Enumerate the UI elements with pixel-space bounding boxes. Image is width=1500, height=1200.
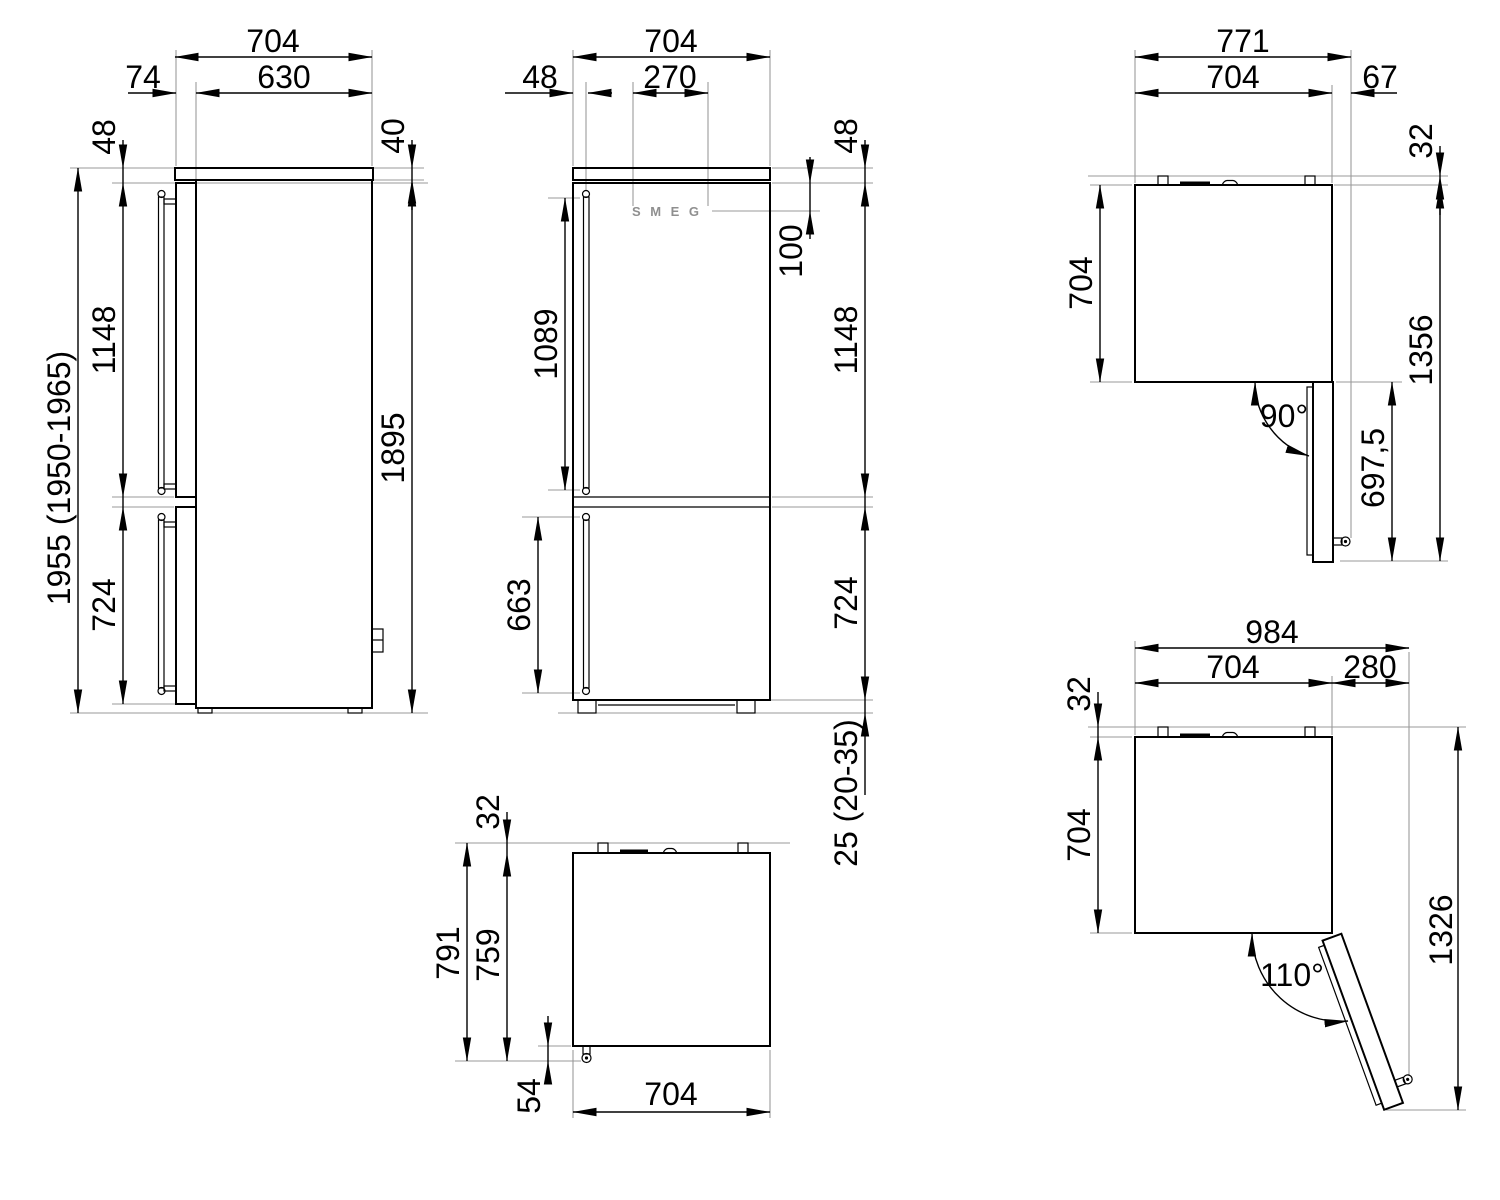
dim-side-upper-door: 1148 bbox=[86, 306, 122, 375]
dim-side-door-depth: 74 bbox=[125, 59, 161, 95]
open-door-110 bbox=[1317, 928, 1419, 1112]
dim-110-body-depth: 704 bbox=[1061, 808, 1097, 861]
dim-90-door-projection: 67 bbox=[1362, 59, 1398, 95]
dim-front-handle-offset: 48 bbox=[522, 59, 558, 95]
side-view: 704 630 74 48 40 1148 724 1955 (1950-196… bbox=[41, 23, 428, 713]
dim-90-angle: 90° bbox=[1260, 398, 1308, 434]
dim-front-logo-width: 270 bbox=[643, 59, 696, 95]
front-dimensions: 704 48 270 48 100 1089 1148 663 724 25 (… bbox=[501, 23, 865, 867]
top90-dimensions: 771 704 67 32 704 1356 697,5 90° bbox=[1063, 23, 1440, 561]
dim-side-total-depth: 704 bbox=[246, 23, 299, 59]
dim-side-top-clearance: 48 bbox=[86, 119, 122, 155]
upper-door-side bbox=[176, 183, 196, 497]
top90-cabinet bbox=[1135, 176, 1332, 382]
left-hinge-closed bbox=[598, 843, 608, 853]
dim-front-upper-door: 1148 bbox=[828, 306, 864, 375]
side-cabinet bbox=[175, 168, 383, 713]
front-view: SMEG 704 48 270 48 100 1089 bbox=[501, 23, 873, 867]
dim-front-lower-handle: 663 bbox=[501, 578, 537, 631]
right-foot-front bbox=[737, 700, 755, 713]
dim-110-hinge-projection: 32 bbox=[1061, 676, 1097, 712]
dim-90-door-clearance: 697,5 bbox=[1355, 428, 1391, 508]
dim-front-feet: 25 (20-35) bbox=[828, 719, 864, 867]
dim-90-total-clearance: 1356 bbox=[1403, 314, 1439, 385]
front-lower-handle bbox=[583, 514, 590, 695]
top-panel-front bbox=[573, 168, 770, 180]
cabinet-plan-110 bbox=[1135, 737, 1332, 933]
cabinet-plan-90 bbox=[1135, 185, 1332, 382]
dim-front-upper-handle: 1089 bbox=[528, 308, 564, 379]
plan-dimensions: 32 791 759 54 704 bbox=[430, 794, 770, 1114]
refrigerator-dimension-drawing: 704 630 74 48 40 1148 724 1955 (1950-196… bbox=[0, 0, 1500, 1200]
top110-cabinet bbox=[1135, 727, 1332, 933]
dim-plan-total-depth: 791 bbox=[430, 926, 466, 979]
top-view-90: 771 704 67 32 704 1356 697,5 90° bbox=[1063, 23, 1448, 562]
handle-stem-closed bbox=[583, 1046, 590, 1054]
dim-plan-width: 704 bbox=[644, 1076, 697, 1112]
open-door-90 bbox=[1307, 382, 1350, 562]
left-hinge-90 bbox=[1158, 176, 1168, 185]
right-hinge-closed bbox=[738, 843, 748, 853]
dim-90-body-width: 704 bbox=[1206, 59, 1259, 95]
top-view-closed: 32 791 759 54 704 bbox=[430, 794, 790, 1118]
back-detail-110 bbox=[1180, 734, 1210, 738]
dim-front-logo-offset: 100 bbox=[773, 224, 809, 277]
cabinet-plan-closed bbox=[573, 853, 770, 1046]
dim-plan-hinge-projection: 32 bbox=[470, 794, 506, 830]
drawing-canvas: 704 630 74 48 40 1148 724 1955 (1950-196… bbox=[0, 0, 1500, 1200]
dim-110-total-width: 984 bbox=[1245, 614, 1298, 650]
top-view-110: 984 704 280 32 704 1326 110° bbox=[1061, 614, 1466, 1112]
dim-plan-depth-with-handle: 759 bbox=[470, 928, 506, 981]
front-upper-handle bbox=[583, 191, 590, 495]
front-cabinet bbox=[573, 168, 770, 713]
left-foot-front bbox=[578, 700, 596, 713]
right-hinge-90 bbox=[1305, 176, 1315, 185]
plan-cabinet bbox=[573, 843, 770, 1063]
top110-extension-lines bbox=[1088, 641, 1466, 1110]
side-dimensions: 704 630 74 48 40 1148 724 1955 (1950-196… bbox=[41, 23, 412, 713]
lower-door-side bbox=[176, 507, 196, 704]
left-hinge-110 bbox=[1158, 727, 1168, 737]
smeg-logo: SMEG bbox=[632, 204, 708, 219]
back-detail-closed bbox=[620, 850, 648, 854]
dim-side-body-depth: 630 bbox=[257, 59, 310, 95]
dim-side-overall-height: 1955 (1950-1965) bbox=[41, 351, 77, 605]
dim-plan-handle-projection: 54 bbox=[511, 1078, 547, 1114]
dim-front-lower-door: 724 bbox=[828, 576, 864, 629]
dim-110-body-width: 704 bbox=[1206, 649, 1259, 685]
dim-90-total-width: 771 bbox=[1216, 23, 1269, 59]
front-extension-lines bbox=[522, 50, 873, 713]
right-hinge-110 bbox=[1305, 727, 1315, 737]
dim-110-door-projection: 280 bbox=[1343, 649, 1396, 685]
dim-side-top-panel: 40 bbox=[375, 118, 411, 154]
dim-side-cabinet-height: 1895 bbox=[375, 412, 411, 483]
dim-110-total-clearance: 1326 bbox=[1423, 894, 1459, 965]
dim-front-width: 704 bbox=[644, 23, 697, 59]
side-lower-handle bbox=[158, 514, 176, 695]
dim-110-angle: 110° bbox=[1260, 957, 1324, 993]
top90-extension-lines bbox=[1088, 50, 1448, 561]
dim-90-body-depth: 704 bbox=[1063, 256, 1099, 309]
door-front bbox=[573, 183, 770, 700]
dim-90-hinge-projection: 32 bbox=[1403, 123, 1439, 159]
cabinet-body-side bbox=[196, 180, 372, 708]
top110-dimensions: 984 704 280 32 704 1326 110° bbox=[1061, 614, 1459, 1110]
side-upper-handle bbox=[158, 191, 176, 495]
top-panel-side bbox=[175, 168, 373, 180]
dim-side-lower-door: 724 bbox=[86, 578, 122, 631]
dim-front-top-clearance: 48 bbox=[828, 118, 864, 154]
back-detail-90 bbox=[1180, 182, 1210, 186]
